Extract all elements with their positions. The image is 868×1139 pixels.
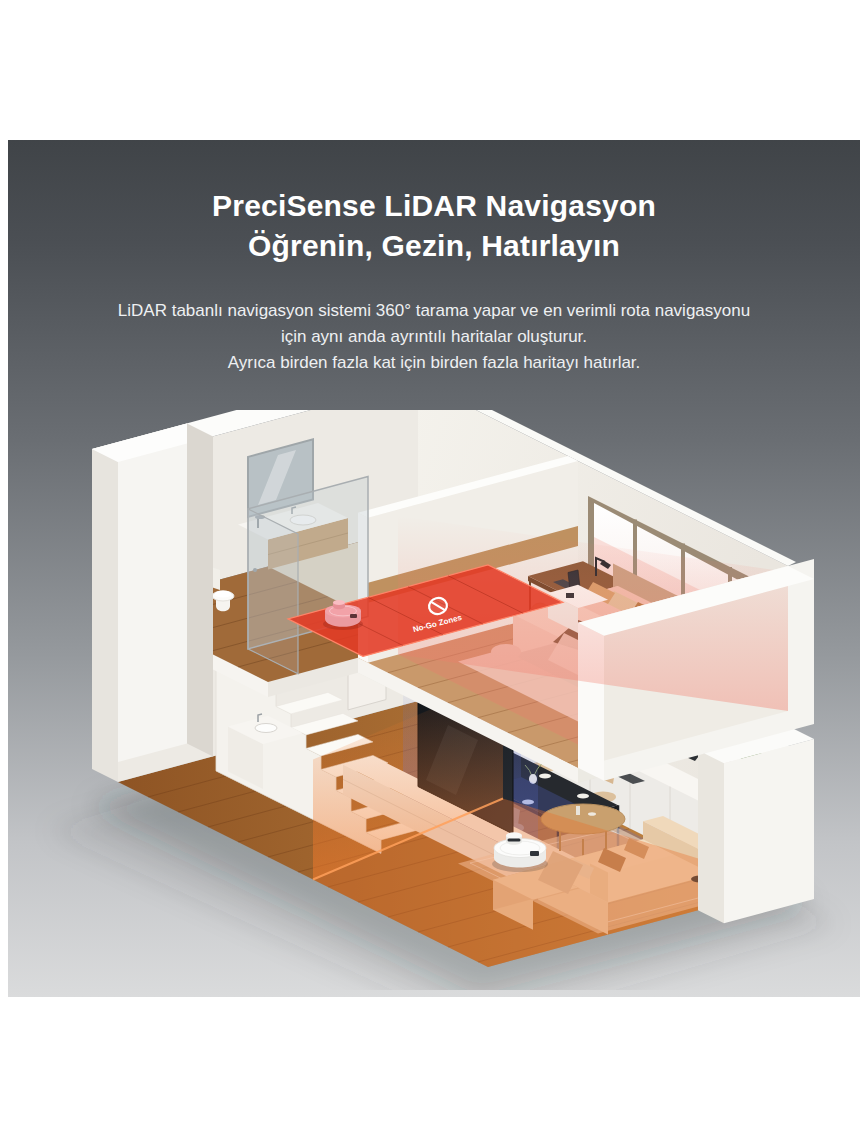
- house-cutaway-svg: No-Go Zones: [8, 410, 860, 990]
- page: { "page": { "background": "#ffffff" }, "…: [0, 0, 868, 1139]
- lidar-turret: [333, 600, 345, 605]
- house-illustration: No-Go Zones: [8, 410, 860, 990]
- description-line-3: Ayrıca birden fazla kat için birden fazl…: [8, 350, 860, 376]
- robot-sensor: [350, 614, 357, 618]
- description: LiDAR tabanlı navigasyon sistemi 360° ta…: [8, 298, 860, 376]
- lidar-turret: [506, 832, 522, 838]
- shower-glass-return: [248, 509, 298, 674]
- left-exterior-wall: [92, 423, 213, 782]
- lower-right-exterior-wall: [698, 726, 814, 923]
- robot-sensor: [530, 851, 539, 856]
- title-line-2: Öğrenin, Gezin, Hatırlayın: [8, 226, 860, 266]
- page-title: PreciSense LiDAR Navigasyon Öğrenin, Gez…: [8, 186, 860, 266]
- title-line-1: PreciSense LiDAR Navigasyon: [8, 186, 860, 226]
- description-line-2: için aynı anda ayrıntılı haritalar oluşt…: [8, 324, 860, 350]
- description-line-1: LiDAR tabanlı navigasyon sistemi 360° ta…: [8, 298, 860, 324]
- gradient-panel: PreciSense LiDAR Navigasyon Öğrenin, Gez…: [8, 140, 860, 997]
